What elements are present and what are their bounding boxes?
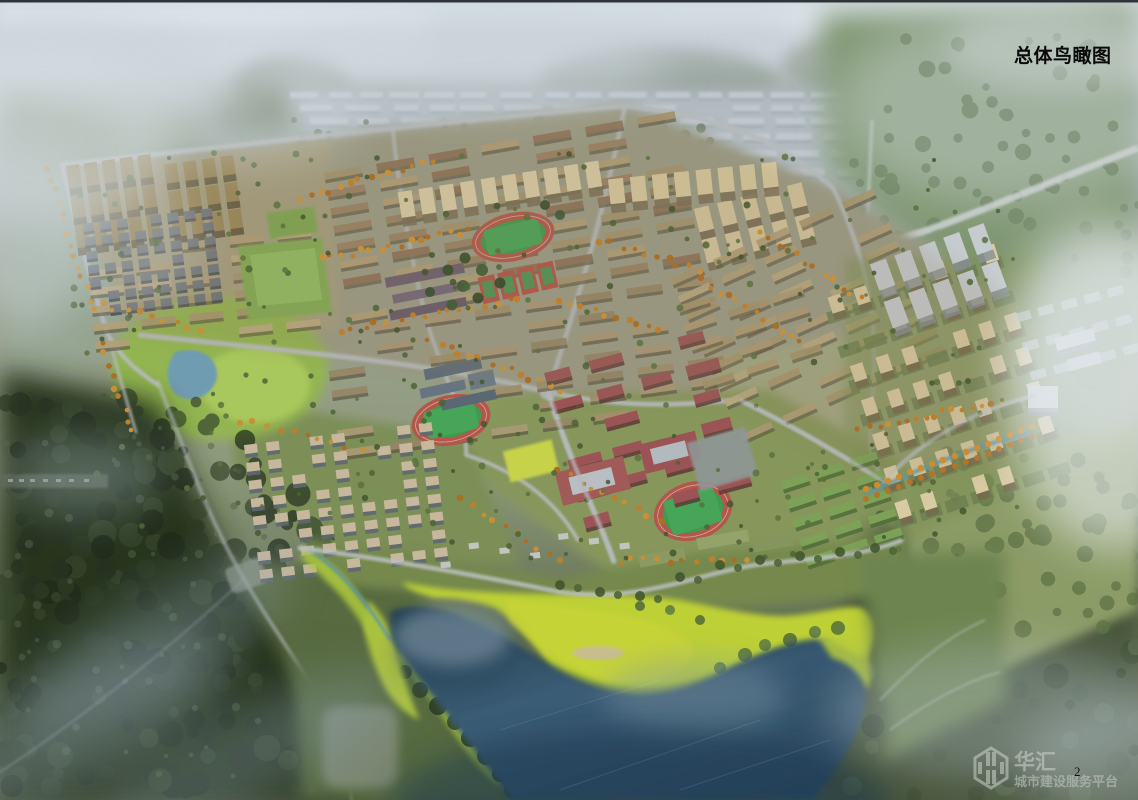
svg-text:华汇: 华汇 <box>1014 750 1056 774</box>
svg-text:总体鸟瞰图: 总体鸟瞰图 <box>1014 44 1112 67</box>
svg-text:2: 2 <box>1074 764 1081 779</box>
svg-text:城市建设服务平台: 城市建设服务平台 <box>1014 774 1118 789</box>
